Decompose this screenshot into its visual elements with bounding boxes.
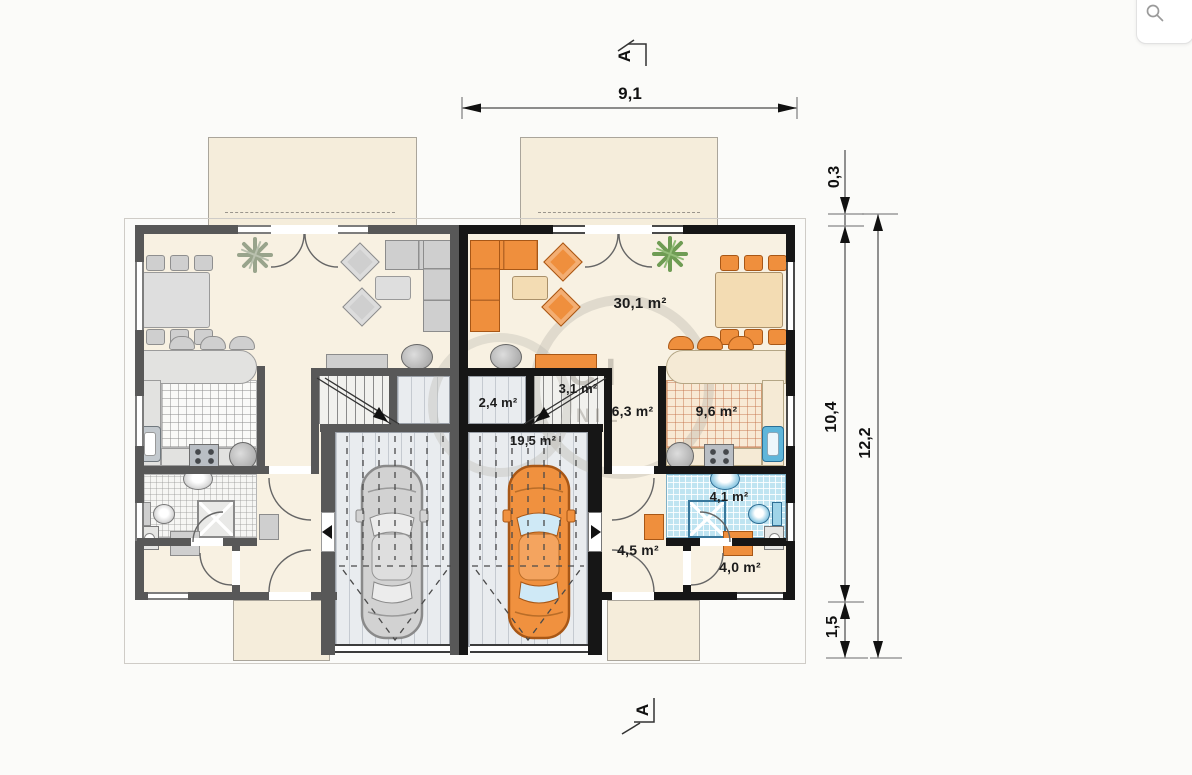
door-opening: [700, 538, 732, 546]
corner-shower: [688, 500, 726, 538]
section-marker-top-label: A: [615, 43, 635, 69]
window: [135, 503, 144, 541]
dining-table: [142, 272, 210, 328]
staircase-left: [319, 376, 389, 424]
wall-segment: [389, 376, 397, 424]
room-label-garage: 19,5 m²: [493, 433, 573, 448]
bar-counter: [666, 350, 786, 384]
garage-door: [470, 644, 588, 653]
window: [786, 503, 795, 541]
door-opening: [612, 592, 654, 600]
window: [786, 262, 795, 330]
terrace-top-left: [208, 137, 417, 227]
room-label-bathroom: 4,1 m²: [699, 489, 759, 504]
wall-segment: [137, 466, 257, 474]
dining-chair: [768, 255, 787, 271]
bar-stool: [728, 336, 754, 350]
stove: [704, 444, 734, 468]
dimension-label-1-5: 1,5: [824, 607, 842, 647]
room-label-staircase: 3,1 m²: [548, 381, 608, 396]
window: [338, 225, 368, 234]
window: [786, 396, 795, 446]
bar-stool: [200, 336, 226, 350]
room-label-living: 30,1 m²: [595, 295, 685, 312]
garage-floor-right: [468, 432, 588, 647]
room-label-entry-hall: 4,5 m²: [607, 542, 669, 558]
bar-stool: [169, 336, 195, 350]
garage-door-niche: [321, 512, 335, 552]
bar-stool: [229, 336, 255, 350]
bar-stool: [697, 336, 723, 350]
terrace-dash-left: [225, 212, 395, 213]
dining-chair: [146, 255, 165, 271]
garage-door-niche: [588, 512, 602, 552]
garage-door: [335, 644, 450, 653]
door-opening: [269, 592, 311, 600]
door-opening: [612, 466, 654, 474]
coffee-table: [375, 276, 411, 300]
corner-sofa: [470, 240, 500, 332]
terrace-dash-right: [538, 212, 700, 213]
wall-segment: [666, 466, 786, 474]
window: [737, 592, 783, 600]
toilet-bowl: [153, 504, 175, 524]
door-opening: [191, 538, 223, 546]
window: [135, 396, 144, 446]
dining-chair: [170, 255, 189, 271]
door-opening: [232, 551, 240, 585]
stove: [189, 444, 219, 468]
party-wall: [459, 225, 468, 655]
kitchen-tiles-left: [161, 380, 257, 448]
dimension-label-12-2: 12,2: [857, 418, 875, 468]
dining-chair: [768, 329, 787, 345]
dimension-label-width: 9,1: [600, 84, 660, 104]
wall-segment: [311, 368, 455, 376]
cabinet: [644, 514, 664, 540]
dining-chair: [146, 329, 165, 345]
bar-counter: [137, 350, 257, 384]
window: [238, 225, 271, 234]
toilet-bowl: [748, 504, 770, 524]
dimension-label-10-4: 10,4: [823, 392, 841, 442]
window: [553, 225, 585, 234]
wall-segment: [320, 424, 455, 432]
garage-floor-left: [335, 432, 450, 647]
pantry-floor-left: [397, 376, 450, 424]
door-opening: [269, 466, 311, 474]
section-marker-bottom-label: A: [633, 697, 653, 723]
terrace-top-right: [520, 137, 718, 227]
zoom-button[interactable]: [1136, 0, 1192, 44]
door-opening: [585, 225, 652, 234]
coffee-table: [512, 276, 548, 300]
room-label-hall: 6,3 m²: [600, 403, 665, 419]
door-opening: [271, 225, 338, 234]
kitchen-sink: [762, 426, 784, 462]
stove-cylinder: [490, 344, 522, 370]
corner-sofa: [423, 240, 453, 332]
room-label-pantry: 2,4 m²: [468, 395, 528, 410]
window: [148, 592, 188, 600]
stove-cylinder: [401, 344, 433, 370]
wall-segment: [257, 366, 265, 466]
dining-chair: [720, 255, 739, 271]
cabinet: [259, 514, 279, 540]
floor-plan: CI NIE: [0, 0, 1192, 775]
dining-table: [715, 272, 783, 328]
dining-chair: [194, 255, 213, 271]
window: [135, 262, 144, 330]
door-opening: [683, 551, 691, 585]
magnifier-icon: [1145, 3, 1165, 23]
wall-segment: [468, 368, 612, 376]
dimension-label-0-3: 0,3: [826, 157, 844, 197]
window: [652, 225, 683, 234]
wall-segment: [468, 424, 603, 432]
corner-shower: [197, 500, 235, 538]
dining-chair: [744, 255, 763, 271]
room-label-kitchen: 9,6 m²: [684, 403, 749, 419]
toilet-tank: [772, 502, 782, 526]
wall-segment: [311, 376, 319, 474]
bar-stool: [668, 336, 694, 350]
party-wall: [450, 225, 459, 655]
room-label-utility: 4,0 m²: [709, 559, 771, 575]
